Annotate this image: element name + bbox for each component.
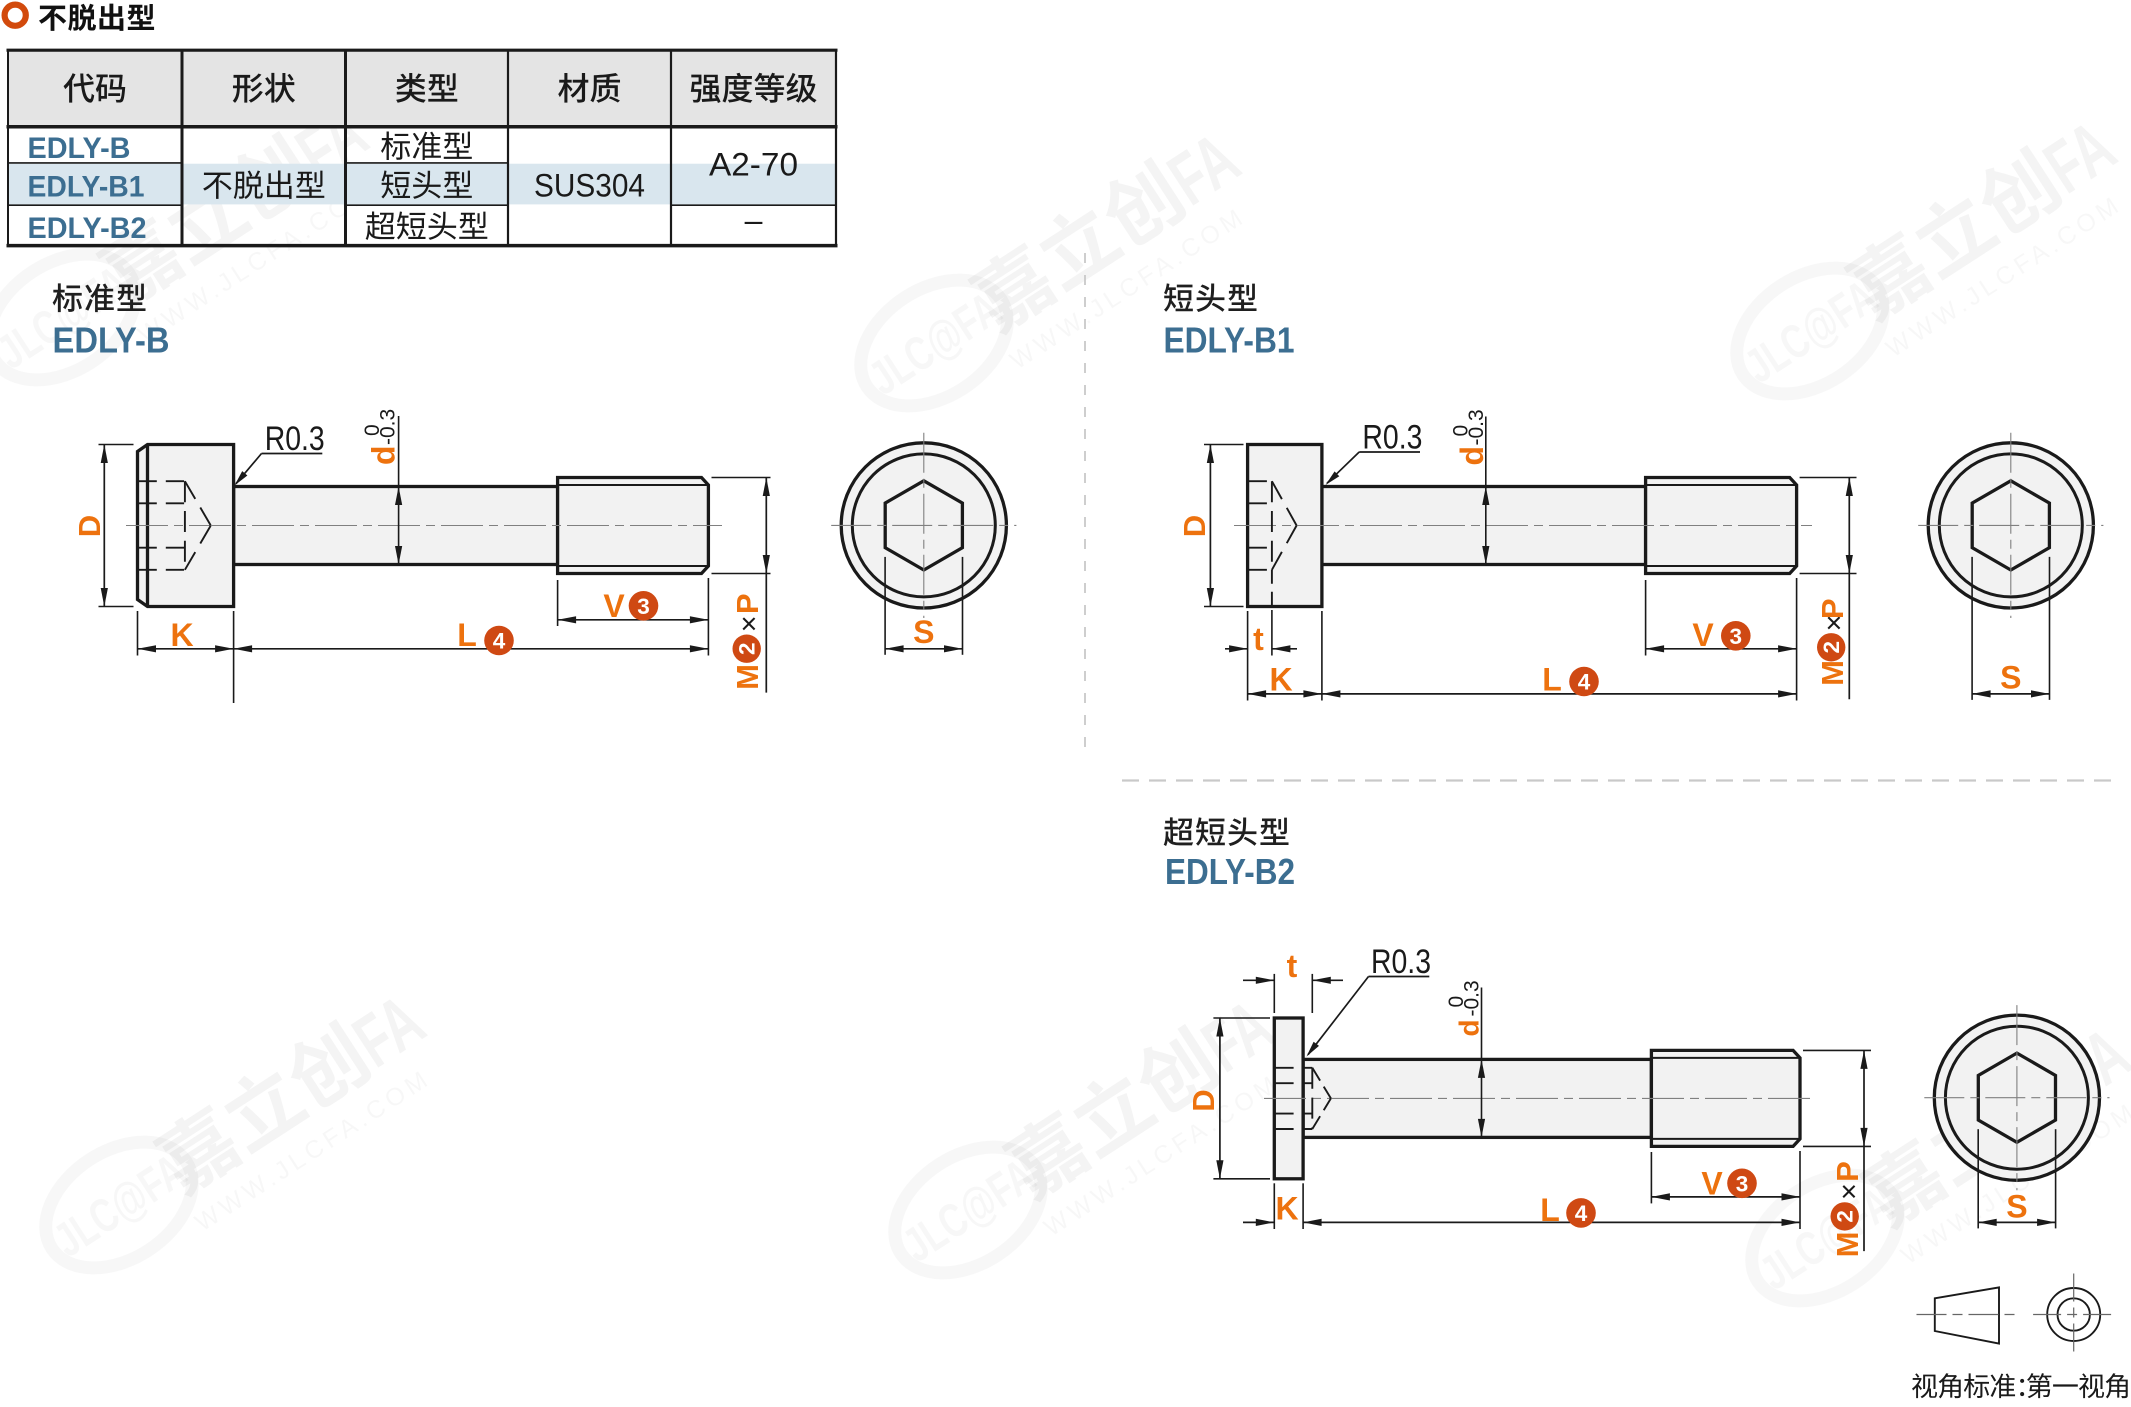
svg-text:t: t: [1287, 948, 1298, 984]
svg-text:d: d: [1454, 1019, 1485, 1036]
svg-text:2: 2: [735, 642, 760, 655]
svg-text:EDLY-B: EDLY-B: [28, 132, 131, 165]
svg-text:t: t: [1253, 621, 1264, 657]
svg-text:A2-70: A2-70: [709, 146, 798, 182]
svg-text:P: P: [730, 593, 765, 614]
svg-text:K: K: [1269, 662, 1292, 698]
svg-text:L: L: [457, 617, 477, 653]
svg-text:3: 3: [637, 594, 650, 619]
svg-text:–: –: [745, 202, 763, 238]
svg-text:P: P: [1815, 598, 1850, 619]
svg-text:0: 0: [1450, 425, 1473, 437]
svg-text:D: D: [1186, 1089, 1221, 1111]
svg-text:R0.3: R0.3: [265, 420, 325, 458]
svg-text:M: M: [1830, 1232, 1865, 1258]
svg-text:M: M: [730, 664, 765, 690]
svg-text:K: K: [1275, 1191, 1298, 1227]
svg-text:R0.3: R0.3: [1371, 943, 1431, 981]
svg-text:0: 0: [361, 424, 384, 436]
svg-text:EDLY-B: EDLY-B: [53, 320, 170, 361]
svg-text:V: V: [1701, 1166, 1723, 1202]
svg-text:2: 2: [1819, 641, 1844, 654]
svg-text:2: 2: [1833, 1210, 1858, 1223]
svg-text:R0.3: R0.3: [1362, 419, 1422, 457]
svg-text:K: K: [170, 617, 193, 653]
svg-text:4: 4: [1578, 670, 1591, 695]
svg-text:d: d: [366, 445, 402, 465]
svg-text:EDLY-B2: EDLY-B2: [1165, 851, 1295, 892]
svg-text:4: 4: [493, 629, 506, 654]
svg-text:V: V: [603, 588, 625, 624]
svg-text:EDLY-B2: EDLY-B2: [28, 212, 147, 245]
svg-text:EDLY-B1: EDLY-B1: [28, 171, 145, 204]
svg-text:D: D: [72, 515, 107, 537]
svg-text:EDLY-B1: EDLY-B1: [1164, 320, 1295, 361]
svg-text:S: S: [2006, 1189, 2027, 1225]
svg-text:4: 4: [1575, 1201, 1588, 1226]
svg-text:V: V: [1692, 617, 1714, 653]
svg-text:×: ×: [734, 615, 766, 632]
svg-text:L: L: [1542, 662, 1562, 698]
svg-text:S: S: [913, 614, 934, 650]
svg-text:SUS304: SUS304: [534, 168, 645, 204]
svg-text:0: 0: [1445, 996, 1468, 1008]
svg-text:3: 3: [1730, 624, 1743, 649]
svg-text:×: ×: [1834, 1183, 1866, 1200]
svg-text:S: S: [2000, 660, 2021, 696]
svg-text:M: M: [1815, 660, 1850, 686]
svg-text:L: L: [1540, 1192, 1560, 1228]
svg-text:d: d: [1454, 446, 1490, 466]
svg-text:D: D: [1177, 515, 1212, 537]
svg-text:P: P: [1830, 1161, 1865, 1182]
svg-text:3: 3: [1736, 1171, 1749, 1196]
